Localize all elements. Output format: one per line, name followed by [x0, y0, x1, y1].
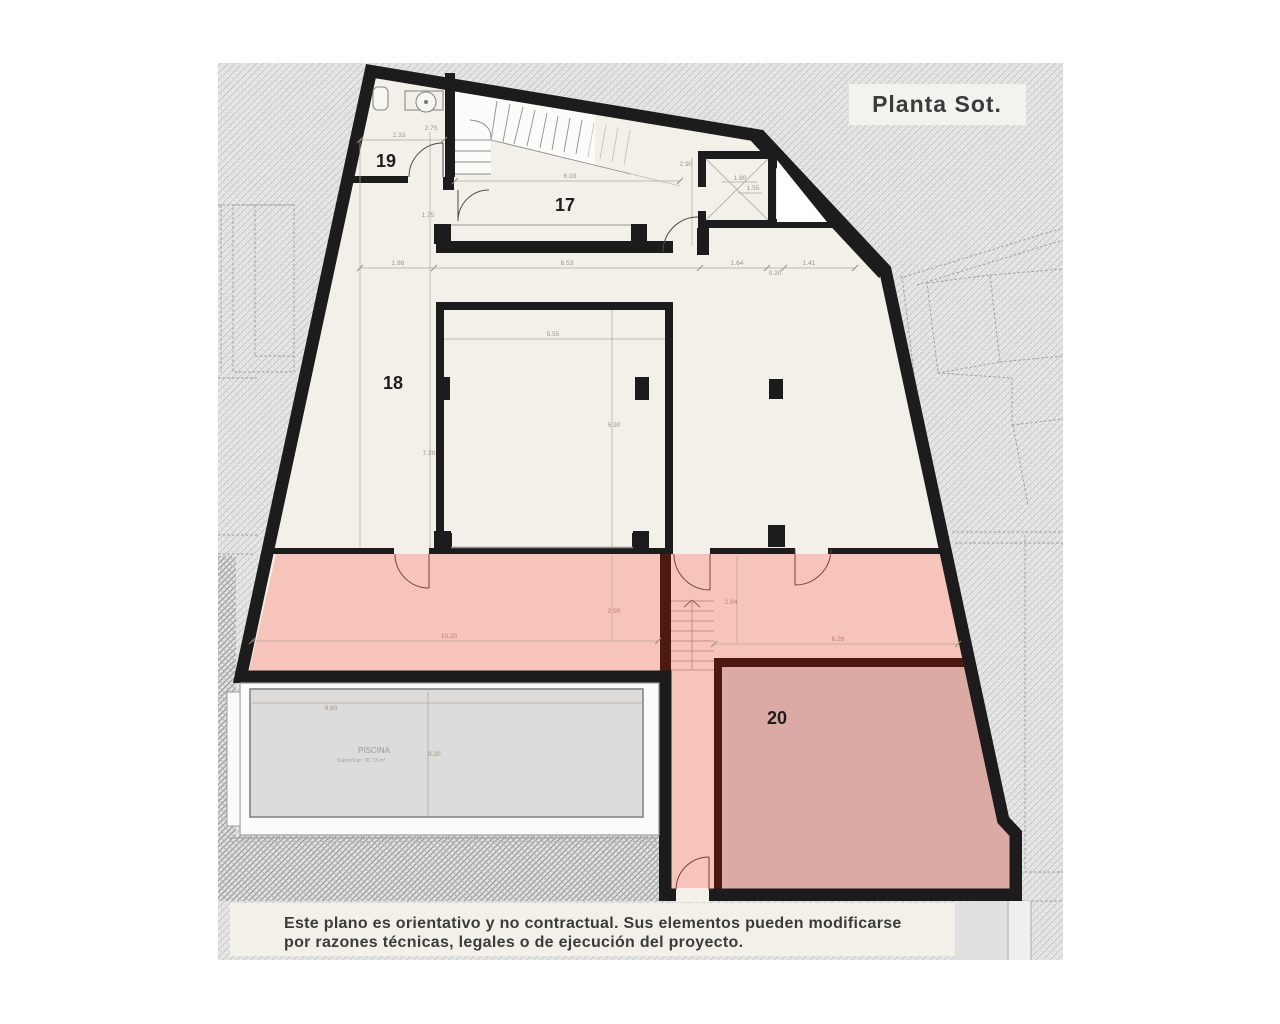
svg-text:1.80: 1.80	[734, 175, 747, 182]
svg-text:PISCINA: PISCINA	[358, 746, 391, 755]
svg-text:5.90: 5.90	[608, 422, 621, 429]
svg-text:6.26: 6.26	[832, 636, 845, 643]
svg-text:18: 18	[383, 373, 403, 393]
svg-text:7.20: 7.20	[423, 450, 436, 457]
svg-text:10.20: 10.20	[441, 633, 458, 640]
svg-text:20: 20	[767, 708, 787, 728]
svg-text:2.33: 2.33	[393, 132, 406, 139]
svg-text:Superficie: 30.72 m²: Superficie: 30.72 m²	[336, 758, 385, 764]
svg-text:6.03: 6.03	[564, 173, 577, 180]
svg-text:2.95: 2.95	[608, 608, 621, 615]
svg-text:2.90: 2.90	[680, 161, 693, 168]
svg-text:2.75: 2.75	[425, 125, 438, 132]
svg-text:1.86: 1.86	[392, 260, 405, 267]
svg-text:por razones técnicas, legales: por razones técnicas, legales o de ejecu…	[284, 934, 743, 951]
svg-text:2.84: 2.84	[725, 599, 738, 606]
svg-text:3.20: 3.20	[428, 751, 441, 758]
svg-text:0.20: 0.20	[769, 270, 782, 277]
svg-text:6.53: 6.53	[561, 260, 574, 267]
svg-text:Planta Sot.: Planta Sot.	[872, 91, 1002, 117]
svg-text:1.55: 1.55	[747, 185, 760, 192]
svg-text:1.41: 1.41	[803, 260, 816, 267]
svg-text:9.60: 9.60	[325, 705, 338, 712]
svg-text:19: 19	[376, 151, 396, 171]
svg-text:1.64: 1.64	[731, 260, 744, 267]
svg-text:5.55: 5.55	[547, 331, 560, 338]
svg-text:1.75: 1.75	[422, 212, 435, 219]
svg-text:Este plano es orientativo y no: Este plano es orientativo y no contractu…	[284, 915, 902, 932]
svg-text:17: 17	[555, 195, 575, 215]
